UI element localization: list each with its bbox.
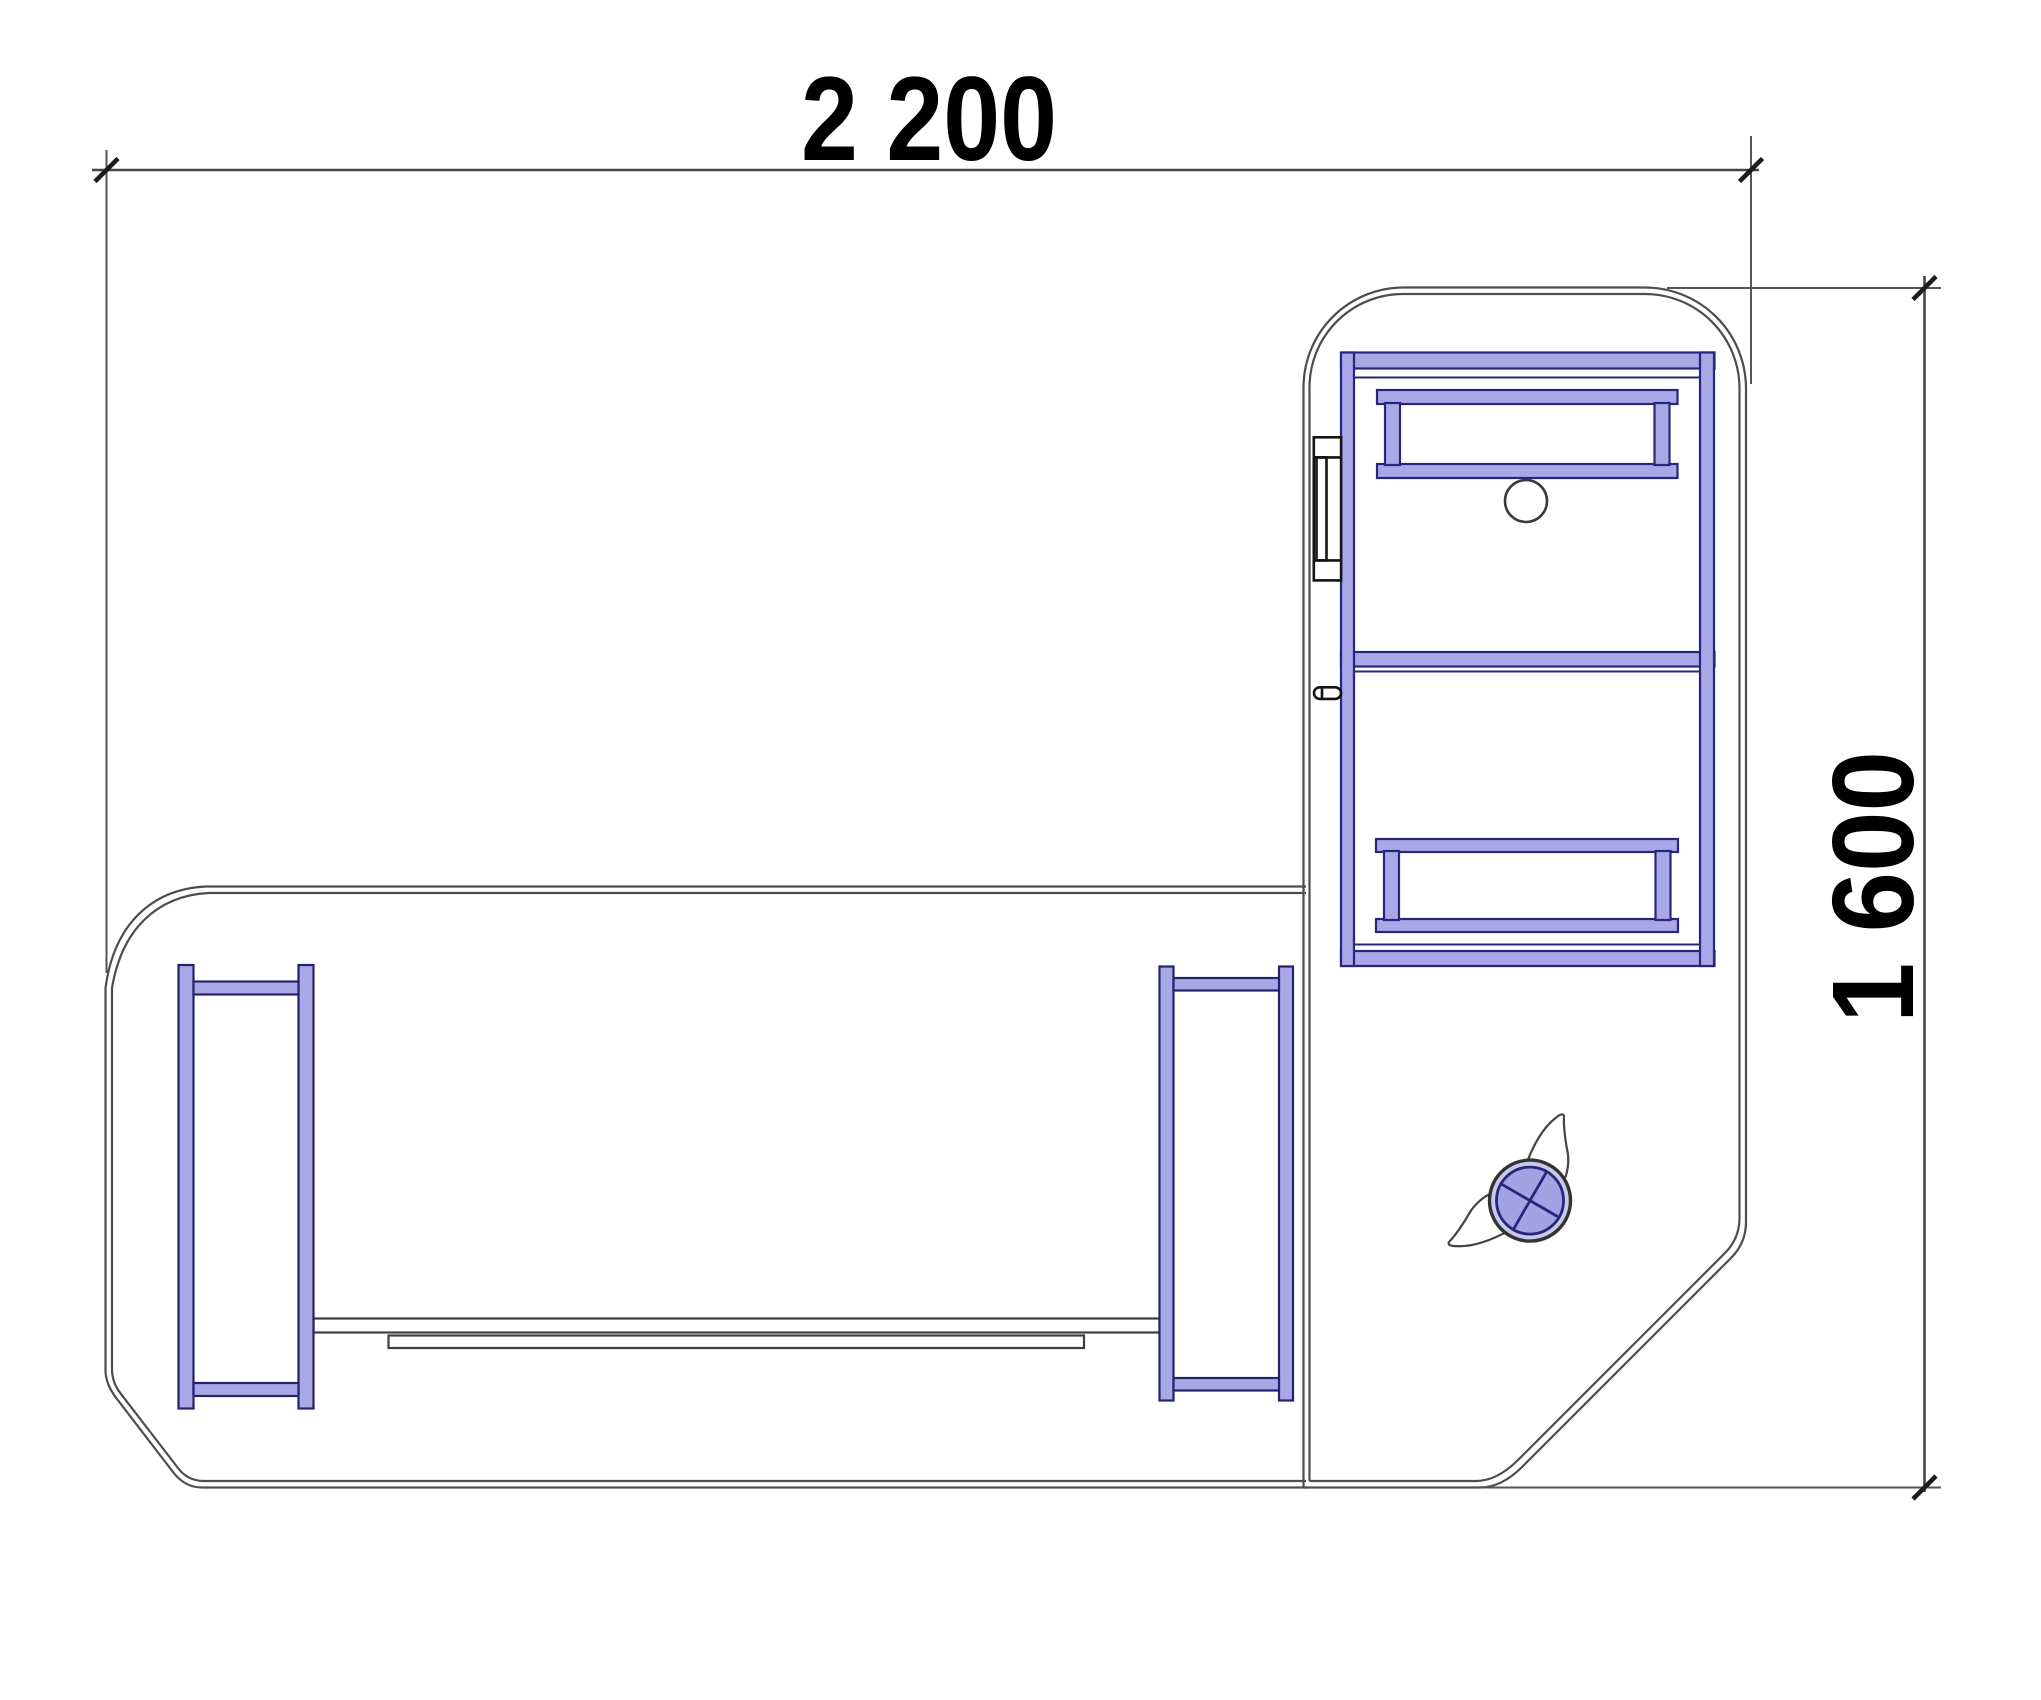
- svg-text:2 200: 2 200: [801, 52, 1057, 186]
- svg-text:1 600: 1 600: [1808, 751, 1938, 1023]
